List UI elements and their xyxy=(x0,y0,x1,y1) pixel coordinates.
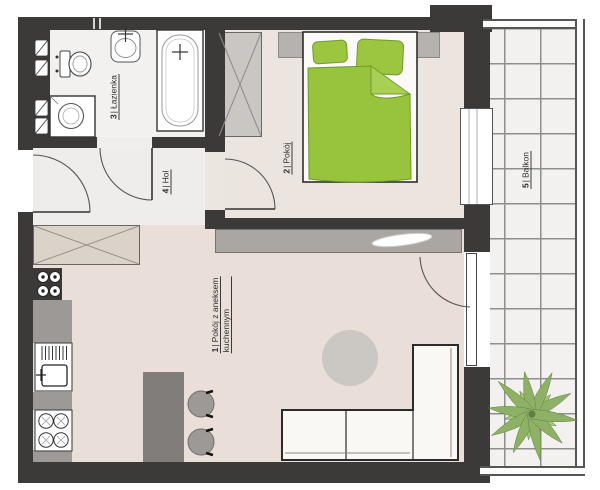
palm-plant-icon xyxy=(488,372,577,461)
bedroom-window-frame-lines xyxy=(469,109,477,204)
room-label-hall: 4|Hol xyxy=(161,170,172,195)
double-bed xyxy=(303,32,417,182)
meter-symbols xyxy=(38,272,61,297)
bedroom-door xyxy=(225,159,275,209)
washbasin xyxy=(111,26,140,62)
room-label-balcony: 5|Balkon xyxy=(521,151,532,189)
kitchen-sink-unit xyxy=(35,343,72,391)
floor-plan: 3|Łazienka 4|Hol 2|Pokój 1|Pokój z aneks… xyxy=(0,0,600,490)
stove xyxy=(35,410,72,451)
decor-object xyxy=(372,231,433,249)
plan-linework xyxy=(0,0,600,490)
room-label-bedroom: 2|Pokój xyxy=(282,141,293,174)
duvet xyxy=(308,66,411,182)
washing-machine xyxy=(50,96,95,137)
bathroom-door xyxy=(100,148,152,200)
room-label-living: 1|Pokój z aneksem kuchennym xyxy=(210,277,232,354)
entry-door xyxy=(33,155,90,212)
utility-shaft-symbols xyxy=(35,40,48,134)
bathtub xyxy=(157,30,203,131)
bar-stools xyxy=(188,391,214,455)
balcony-door xyxy=(420,257,470,307)
toilet xyxy=(56,51,92,77)
room-label-bathroom: 3|Łazienka xyxy=(109,74,120,120)
round-rug xyxy=(322,330,378,386)
